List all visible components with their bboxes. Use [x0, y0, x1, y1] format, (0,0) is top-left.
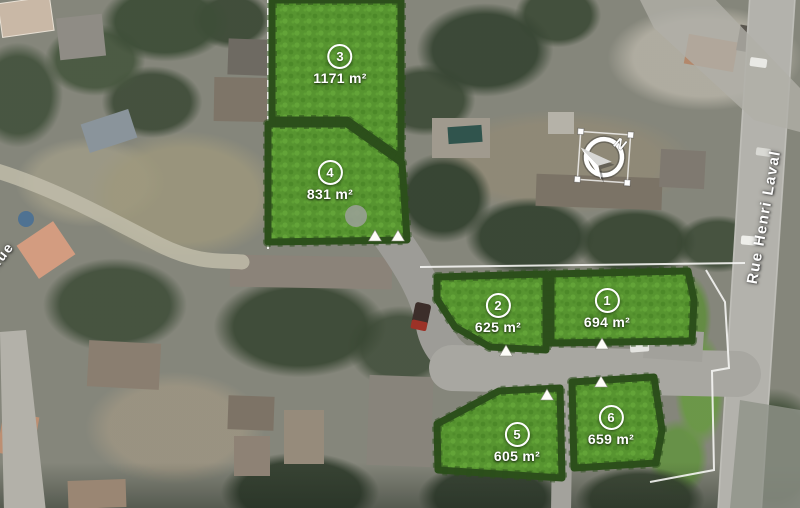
lot-number: 2	[494, 299, 501, 312]
lot-2-number-badge[interactable]: 2	[485, 293, 510, 318]
plan-overlay: N	[0, 0, 800, 508]
lot-5-number-badge[interactable]: 5	[504, 422, 529, 447]
compass-corner	[578, 128, 584, 134]
aerial-lot-plan: N 3 1171 m² 4 831 m² 2 625 m² 1 694 m² 5…	[0, 0, 800, 508]
lot-4-number-badge[interactable]: 4	[317, 160, 342, 185]
lot-1-label[interactable]: 1 694 m²	[584, 288, 630, 330]
lot-number: 6	[607, 411, 614, 424]
building-roof	[234, 436, 270, 476]
lot-6-label[interactable]: 6 659 m²	[588, 405, 634, 447]
compass-corner	[574, 176, 580, 182]
building-roof	[87, 340, 161, 390]
pool-cover	[447, 125, 482, 144]
building-roof	[659, 149, 706, 189]
building-roof	[68, 479, 127, 508]
lot-4-label[interactable]: 4 831 m²	[307, 160, 353, 202]
lot-1-number-badge[interactable]: 1	[594, 288, 619, 313]
road-shaded	[730, 400, 800, 508]
building-roof	[56, 14, 106, 61]
lot-number: 1	[603, 294, 610, 307]
lot-5-label[interactable]: 5 605 m²	[494, 422, 540, 464]
building-roof	[284, 410, 324, 464]
compass-north-label: N	[611, 134, 630, 155]
boundary-line-north	[420, 263, 745, 267]
building-roof	[227, 395, 274, 431]
lot-3-number-badge[interactable]: 3	[327, 44, 352, 69]
lot-2-area: 625 m²	[475, 319, 521, 335]
lot-5-area: 605 m²	[494, 448, 540, 464]
pool	[18, 211, 34, 227]
building-roof	[535, 174, 662, 210]
compass-corner	[627, 132, 633, 138]
access-road-main	[452, 368, 738, 374]
lot-2-label[interactable]: 2 625 m²	[475, 293, 521, 335]
lot-number: 3	[336, 50, 343, 63]
utility-circle	[345, 205, 367, 227]
building-roof	[0, 0, 54, 37]
lot-6-number-badge[interactable]: 6	[598, 405, 623, 430]
compass-corner	[624, 180, 630, 186]
building-roof	[17, 221, 76, 279]
building-roof	[366, 375, 433, 467]
building-roof	[230, 255, 393, 290]
road-left	[0, 330, 46, 508]
lot-1-area: 694 m²	[584, 314, 630, 330]
lot-3-area: 1171 m²	[313, 70, 366, 86]
building-roof	[81, 109, 138, 153]
lot-number: 4	[326, 166, 333, 179]
lot-6-area: 659 m²	[588, 431, 634, 447]
building-roof	[548, 112, 574, 134]
lot-3-label[interactable]: 3 1171 m²	[313, 44, 366, 86]
lot-4-area: 831 m²	[307, 186, 353, 202]
lot-number: 5	[513, 428, 520, 441]
